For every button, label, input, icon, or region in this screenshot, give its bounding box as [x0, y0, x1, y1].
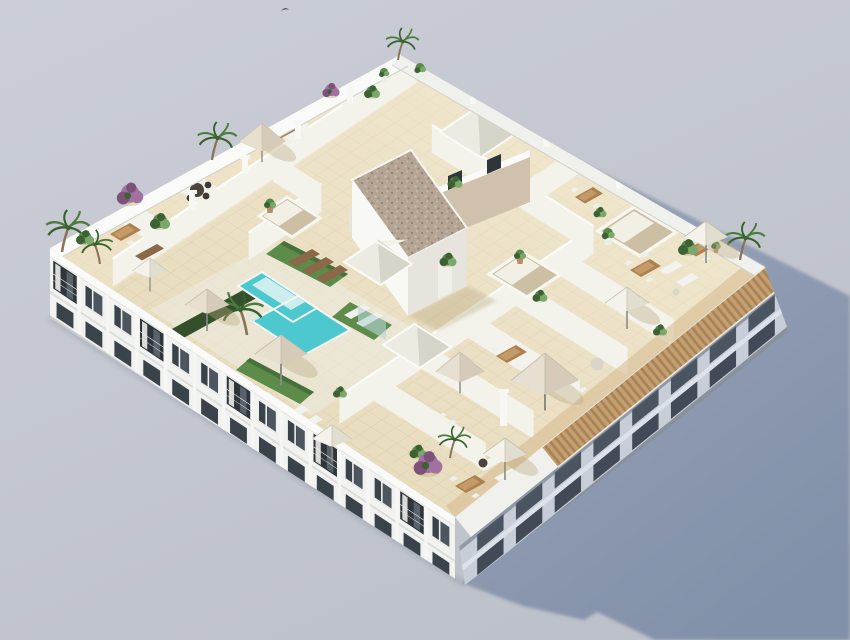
coffee-table: [479, 459, 488, 468]
render-canvas: [0, 0, 850, 640]
aerial-building-render: [0, 0, 850, 640]
round-table: [591, 358, 604, 371]
